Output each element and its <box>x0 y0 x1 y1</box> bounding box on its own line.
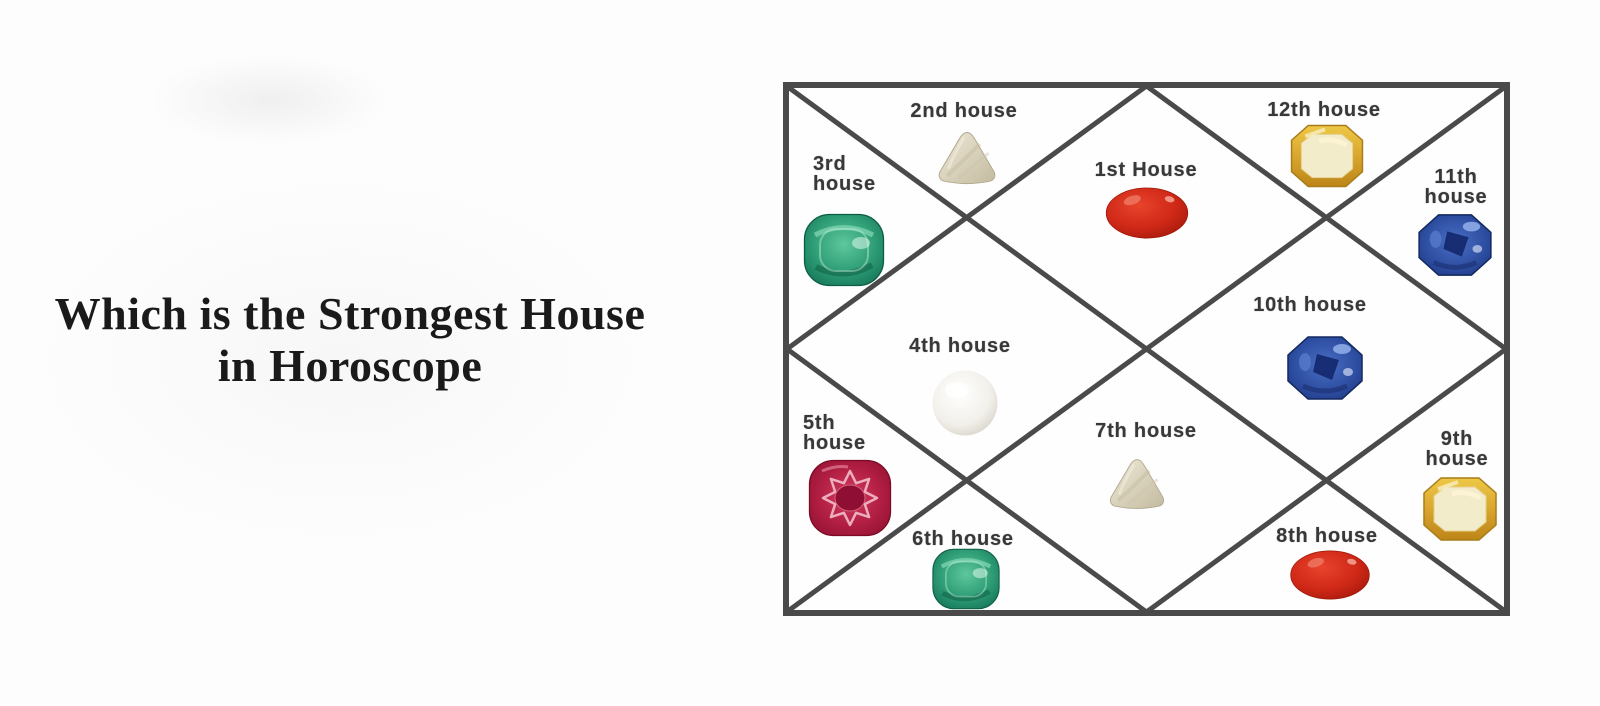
horoscope-chart: 1st House 2nd house 3rd house 4th house … <box>783 82 1510 616</box>
title-line-2: in Horoscope <box>20 340 680 392</box>
red-coral-gem-icon <box>1103 186 1191 241</box>
house-10-label: 10th house <box>1253 295 1367 315</box>
house-12-label: 12th house <box>1267 100 1381 120</box>
trillion-stone-gem-icon <box>934 130 1000 187</box>
yellow-sapphire-gem-icon <box>1290 124 1365 189</box>
page-title: Which is the Strongest House in Horoscop… <box>20 288 680 392</box>
blue-sapphire-gem-icon <box>1415 212 1495 278</box>
house-1-label: 1st House <box>1095 160 1198 180</box>
red-coral-gem-icon <box>1287 549 1373 602</box>
house-9-label: 9th house <box>1423 429 1491 469</box>
page: { "title": { "line1": "Which is the Stro… <box>0 0 1600 706</box>
house-6-label: 6th house <box>912 529 1014 549</box>
pearl-gem-icon <box>931 369 999 437</box>
house-2-label: 2nd house <box>910 101 1017 121</box>
house-5-label: 5th house <box>803 413 869 453</box>
title-line-1: Which is the Strongest House <box>20 288 680 340</box>
trillion-stone-gem-icon <box>1106 455 1168 513</box>
emerald-gem-icon <box>803 213 885 288</box>
house-11-label: 11th house <box>1422 167 1490 207</box>
emerald-gem-icon <box>925 548 1007 610</box>
house-3-label: 3rd house <box>813 154 879 194</box>
yellow-sapphire-gem-icon <box>1422 476 1498 542</box>
house-8-label: 8th house <box>1276 526 1378 546</box>
house-4-label: 4th house <box>909 336 1011 356</box>
blue-sapphire-gem-icon <box>1285 333 1365 403</box>
ruby-gem-icon <box>808 459 892 537</box>
background-smudge <box>150 55 390 145</box>
house-7-label: 7th house <box>1095 421 1197 441</box>
